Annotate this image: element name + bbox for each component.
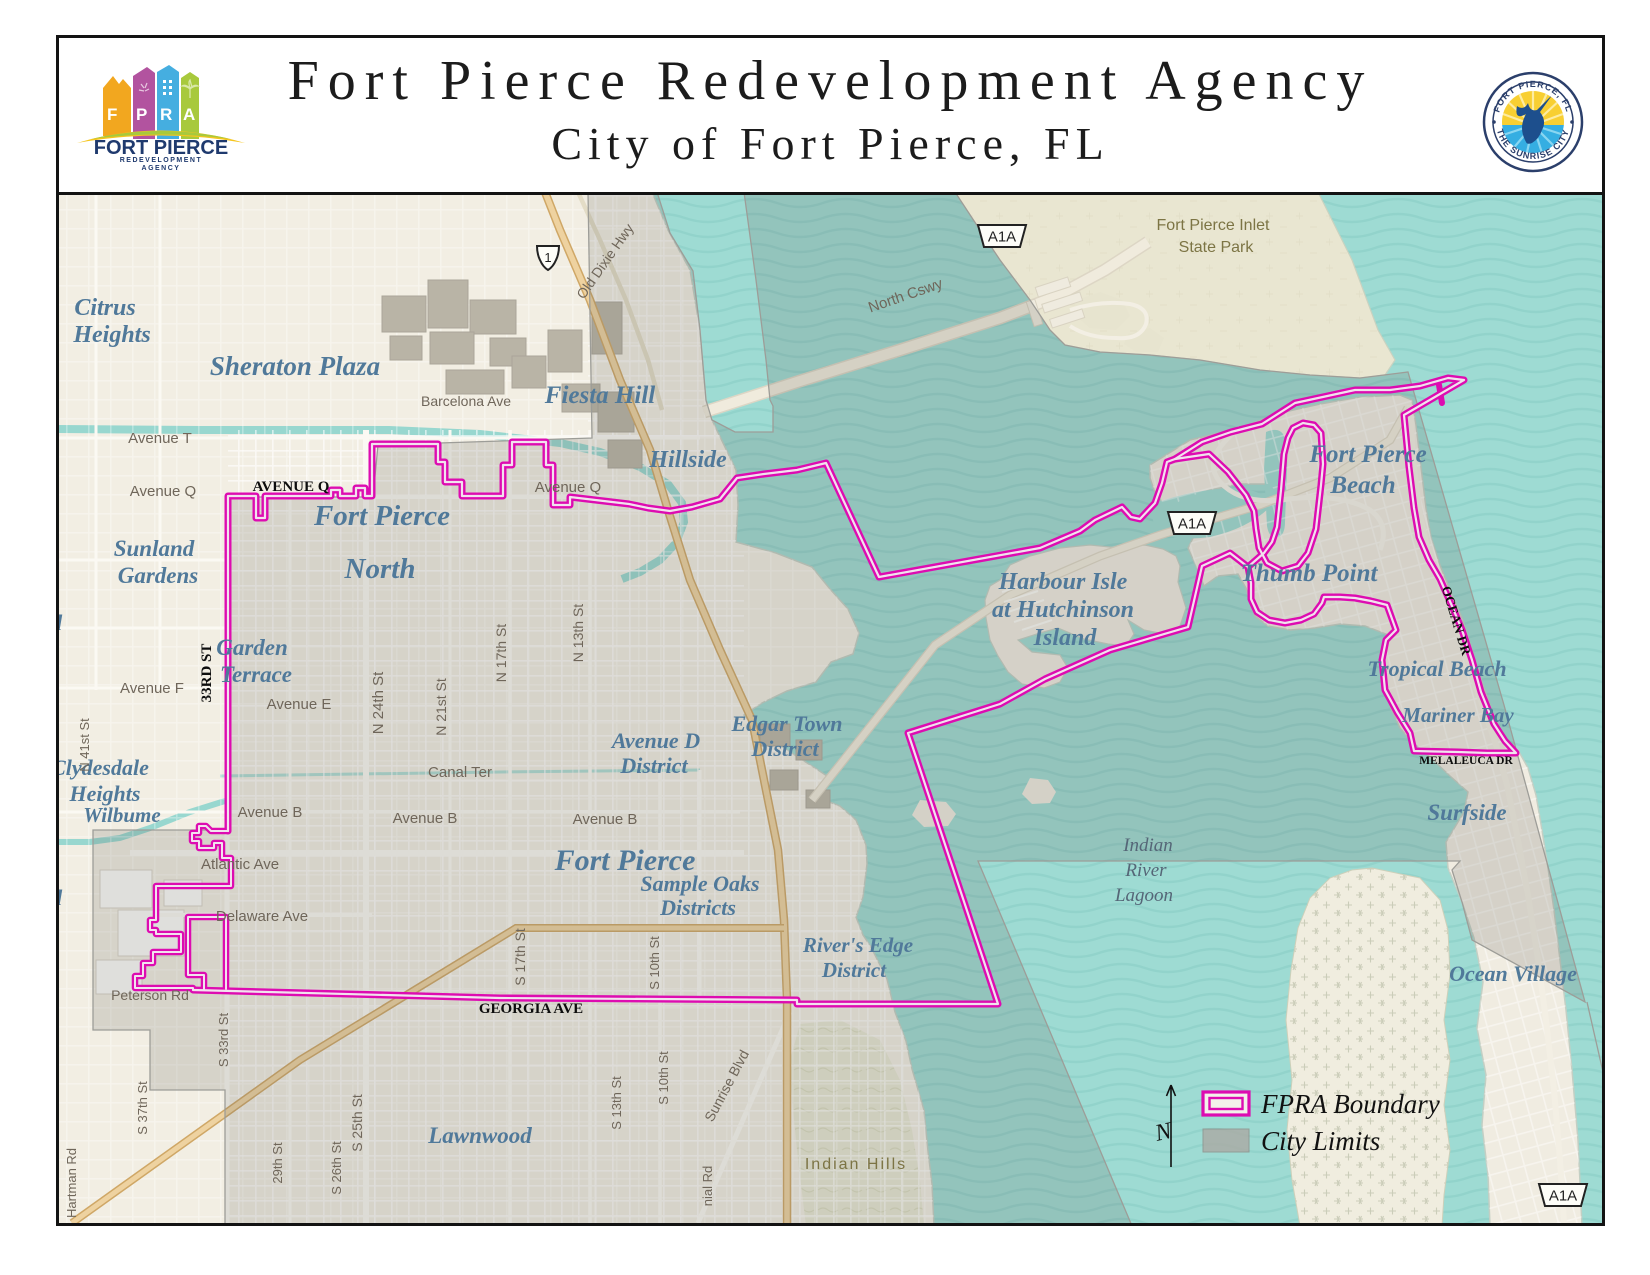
svg-text:River: River (1124, 860, 1167, 881)
svg-text:at Hutchinson: at Hutchinson (992, 597, 1134, 623)
svg-text:District: District (619, 753, 688, 778)
svg-text:Garden: Garden (216, 635, 288, 660)
svg-text:Lawnwood: Lawnwood (427, 1123, 532, 1148)
svg-text:Sunland: Sunland (114, 536, 195, 561)
svg-text:Indian Hills: Indian Hills (805, 1156, 907, 1173)
svg-text:Districts: Districts (659, 895, 736, 920)
svg-text:Canal Ter: Canal Ter (428, 764, 492, 781)
svg-text:Sample Oaks: Sample Oaks (640, 871, 759, 896)
svg-text:Fort Pierce: Fort Pierce (1308, 441, 1426, 468)
svg-text:29th St: 29th St (270, 1142, 285, 1184)
svg-text:Beach: Beach (1329, 472, 1395, 499)
svg-text:Avenue Q: Avenue Q (130, 483, 196, 500)
svg-text:Avenue B: Avenue B (573, 811, 638, 828)
svg-text:GEORGIA AVE: GEORGIA AVE (479, 1001, 583, 1017)
svg-text:S 10th St: S 10th St (647, 936, 662, 990)
svg-text:Heights: Heights (72, 322, 150, 348)
svg-text:Sheraton Plaza: Sheraton Plaza (210, 351, 380, 381)
svg-text:S 13th St: S 13th St (609, 1076, 624, 1130)
svg-text:Avenue T: Avenue T (128, 430, 192, 447)
svg-text:District: District (821, 958, 887, 982)
svg-text:Fiesta Hill: Fiesta Hill (544, 382, 655, 409)
svg-text:Lagoon: Lagoon (1114, 885, 1173, 906)
svg-text:Hartman Rd: Hartman Rd (64, 1148, 79, 1218)
svg-text:S 26th St: S 26th St (329, 1141, 344, 1195)
svg-text:Island: Island (1033, 625, 1098, 651)
svg-text:Avenue B: Avenue B (393, 810, 458, 827)
svg-text:North: North (344, 553, 416, 585)
svg-text:1: 1 (544, 250, 551, 265)
svg-text:N 17th St: N 17th St (493, 624, 509, 682)
svg-text:Edgar Town: Edgar Town (730, 711, 842, 736)
svg-text:Terrace: Terrace (220, 662, 292, 687)
svg-text:A1A: A1A (988, 229, 1016, 246)
svg-text:City Limits: City Limits (1261, 1126, 1380, 1156)
svg-text:District: District (750, 736, 819, 761)
svg-text:Avenue Q: Avenue Q (535, 479, 601, 496)
svg-text:Indian: Indian (1122, 835, 1173, 856)
svg-text:S 37th St: S 37th St (135, 1081, 150, 1135)
svg-text:Atlantic Ave: Atlantic Ave (201, 856, 279, 873)
svg-text:N 24th St: N 24th St (370, 671, 387, 734)
svg-text:Avenue F: Avenue F (120, 680, 184, 697)
svg-text:N 21st St: N 21st St (433, 678, 449, 736)
svg-text:Thumb Point: Thumb Point (1241, 560, 1379, 587)
svg-text:Harbour Isle: Harbour Isle (998, 569, 1128, 595)
svg-text:Ocean Village: Ocean Village (1449, 961, 1577, 986)
svg-text:Hillside: Hillside (648, 447, 727, 473)
svg-text:FPRA Boundary: FPRA Boundary (1260, 1089, 1440, 1119)
svg-text:nial Rd: nial Rd (700, 1166, 715, 1206)
svg-text:Avenue B: Avenue B (238, 804, 303, 821)
svg-text:MELALEUCA DR: MELALEUCA DR (1419, 755, 1513, 767)
svg-text:Peterson Rd: Peterson Rd (111, 987, 189, 1003)
svg-text:Surfside: Surfside (1427, 800, 1506, 825)
svg-text:River's Edge: River's Edge (802, 933, 913, 957)
svg-text:State Park: State Park (1179, 239, 1255, 256)
svg-text:Tropical Beach: Tropical Beach (1367, 656, 1506, 681)
svg-text:Delaware Ave: Delaware Ave (216, 908, 308, 925)
svg-text:Mariner Bay: Mariner Bay (1401, 703, 1514, 727)
svg-text:A1A: A1A (1178, 516, 1206, 533)
svg-text:S 17th St: S 17th St (512, 928, 528, 986)
svg-text:Fort Pierce Inlet: Fort Pierce Inlet (1157, 217, 1270, 234)
svg-text:Gardens: Gardens (118, 563, 199, 588)
svg-text:Clydesdale: Clydesdale (59, 755, 149, 780)
svg-text:S 33rd St: S 33rd St (216, 1013, 231, 1068)
svg-text:Wilbume: Wilbume (83, 803, 160, 827)
svg-text:Fort Pierce: Fort Pierce (313, 500, 450, 532)
svg-text:Citrus: Citrus (74, 295, 135, 321)
svg-text:N 41st St: N 41st St (77, 718, 92, 772)
svg-text:N 13th St: N 13th St (570, 604, 586, 662)
svg-text:Avenue D: Avenue D (610, 728, 700, 753)
svg-text:AVENUE Q: AVENUE Q (253, 479, 330, 495)
svg-text:S 25th St: S 25th St (349, 1094, 365, 1152)
svg-text:33RD ST: 33RD ST (199, 644, 215, 703)
svg-text:Avenue E: Avenue E (267, 696, 332, 713)
svg-text:Barcelona Ave: Barcelona Ave (421, 393, 511, 409)
svg-text:A1A: A1A (1549, 1188, 1577, 1205)
svg-text:S 10th St: S 10th St (656, 1051, 671, 1105)
